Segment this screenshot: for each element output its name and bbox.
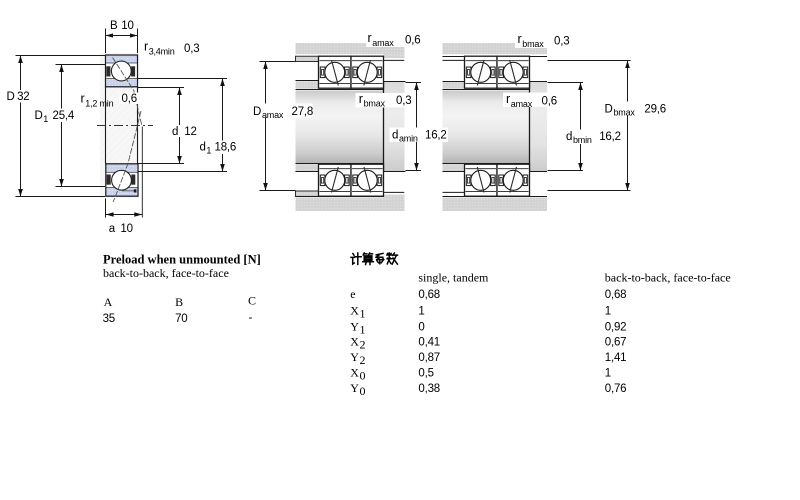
- svg-text:1: 1: [360, 307, 366, 321]
- svg-text:12: 12: [184, 126, 196, 138]
- svg-text:1: 1: [418, 306, 424, 318]
- svg-text:1: 1: [360, 322, 366, 336]
- svg-text:bmax: bmax: [614, 107, 636, 117]
- svg-text:D: D: [253, 106, 261, 118]
- svg-text:back-to-back, face-to-face: back-to-back, face-to-face: [605, 271, 731, 285]
- svg-text:2: 2: [360, 353, 366, 367]
- svg-text:35: 35: [103, 313, 115, 325]
- svg-text:a: a: [109, 223, 116, 235]
- svg-text:0,6: 0,6: [542, 95, 557, 107]
- svg-text:-: -: [249, 312, 253, 324]
- svg-text:e: e: [350, 287, 355, 301]
- svg-text:0,67: 0,67: [605, 337, 627, 349]
- svg-text:Y: Y: [350, 319, 359, 333]
- svg-text:32: 32: [17, 91, 29, 103]
- svg-text:bmax: bmax: [522, 39, 544, 49]
- svg-text:r: r: [506, 92, 510, 106]
- svg-text:r: r: [144, 40, 148, 54]
- svg-text:0,41: 0,41: [418, 337, 440, 349]
- svg-text:C: C: [248, 294, 256, 308]
- svg-text:0: 0: [418, 321, 424, 333]
- svg-text:0,68: 0,68: [605, 289, 627, 301]
- svg-text:Y: Y: [350, 381, 359, 395]
- svg-text:D: D: [605, 103, 613, 115]
- svg-text:X: X: [350, 335, 359, 349]
- svg-text:27,8: 27,8: [292, 106, 314, 118]
- svg-text:d: d: [392, 130, 398, 142]
- svg-text:d: d: [200, 142, 206, 154]
- svg-text:r: r: [368, 31, 372, 45]
- svg-text:D: D: [7, 91, 15, 103]
- svg-text:3,4min: 3,4min: [149, 47, 175, 57]
- svg-text:0,38: 0,38: [418, 383, 440, 395]
- svg-text:1: 1: [43, 114, 48, 124]
- svg-text:29,6: 29,6: [644, 103, 666, 115]
- svg-text:16,2: 16,2: [425, 130, 447, 142]
- svg-text:0: 0: [360, 384, 366, 398]
- svg-text:0,3: 0,3: [184, 43, 199, 55]
- svg-text:d: d: [172, 126, 178, 138]
- svg-text:0,87: 0,87: [418, 352, 440, 364]
- svg-text:0,3: 0,3: [396, 95, 411, 107]
- svg-text:D: D: [35, 110, 43, 122]
- svg-text:0,6: 0,6: [405, 35, 420, 47]
- svg-text:single, tandem: single, tandem: [418, 271, 489, 285]
- svg-text:1,2 min: 1,2 min: [85, 99, 113, 109]
- svg-text:X: X: [350, 365, 359, 379]
- svg-text:0,5: 0,5: [418, 367, 433, 379]
- svg-text:0,6: 0,6: [122, 93, 137, 105]
- svg-text:r: r: [359, 92, 363, 106]
- svg-text:back-to-back, face-to-face: back-to-back, face-to-face: [103, 266, 229, 280]
- svg-text:10: 10: [120, 223, 132, 235]
- svg-text:amax: amax: [511, 99, 533, 109]
- svg-text:Preload when unmounted [N]: Preload when unmounted [N]: [103, 253, 261, 267]
- svg-text:r: r: [81, 92, 85, 106]
- svg-text:18,6: 18,6: [215, 142, 237, 154]
- svg-text:1: 1: [605, 306, 611, 318]
- svg-text:1: 1: [605, 367, 611, 379]
- svg-text:B: B: [110, 20, 118, 32]
- svg-text:bmax: bmax: [364, 99, 386, 109]
- svg-text:70: 70: [175, 313, 187, 325]
- svg-text:Y: Y: [350, 350, 359, 364]
- svg-text:amax: amax: [262, 110, 284, 120]
- svg-text:0,92: 0,92: [605, 321, 627, 333]
- svg-text:0,76: 0,76: [605, 383, 627, 395]
- svg-text:16,2: 16,2: [599, 131, 621, 143]
- svg-text:A: A: [104, 295, 113, 309]
- svg-text:X: X: [350, 304, 359, 318]
- svg-text:bmin: bmin: [573, 135, 592, 145]
- svg-text:B: B: [175, 295, 183, 309]
- svg-text:10: 10: [121, 20, 133, 32]
- svg-text:r: r: [518, 32, 522, 46]
- svg-text:25,4: 25,4: [53, 110, 75, 122]
- svg-text:2: 2: [360, 338, 366, 352]
- svg-text:amin: amin: [399, 134, 418, 144]
- svg-text:0,68: 0,68: [418, 289, 440, 301]
- svg-text:1: 1: [206, 146, 211, 156]
- svg-text:d: d: [566, 131, 572, 143]
- svg-text:1,41: 1,41: [605, 352, 627, 364]
- svg-text:0,3: 0,3: [554, 36, 569, 48]
- svg-text:amax: amax: [372, 38, 394, 48]
- svg-text:0: 0: [360, 368, 366, 382]
